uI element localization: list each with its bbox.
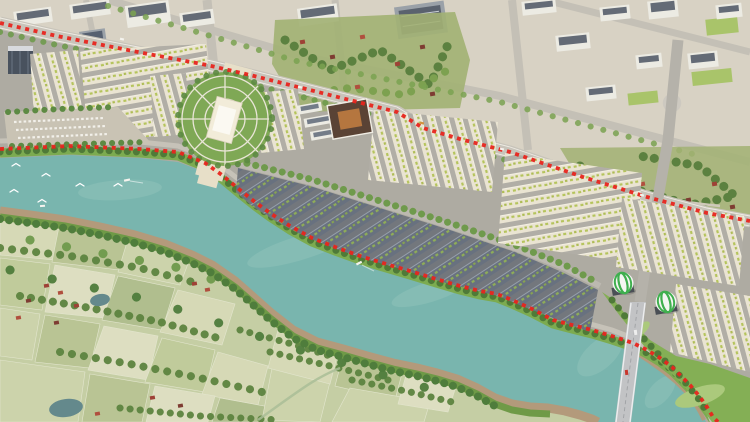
bridge-car-red	[625, 370, 629, 375]
block-center-grid	[368, 110, 498, 192]
masterplan-render	[0, 0, 750, 422]
aerial-scene	[0, 0, 750, 422]
civic-building	[327, 99, 372, 139]
bridge-car-white	[634, 330, 638, 335]
office-tower	[8, 46, 33, 74]
